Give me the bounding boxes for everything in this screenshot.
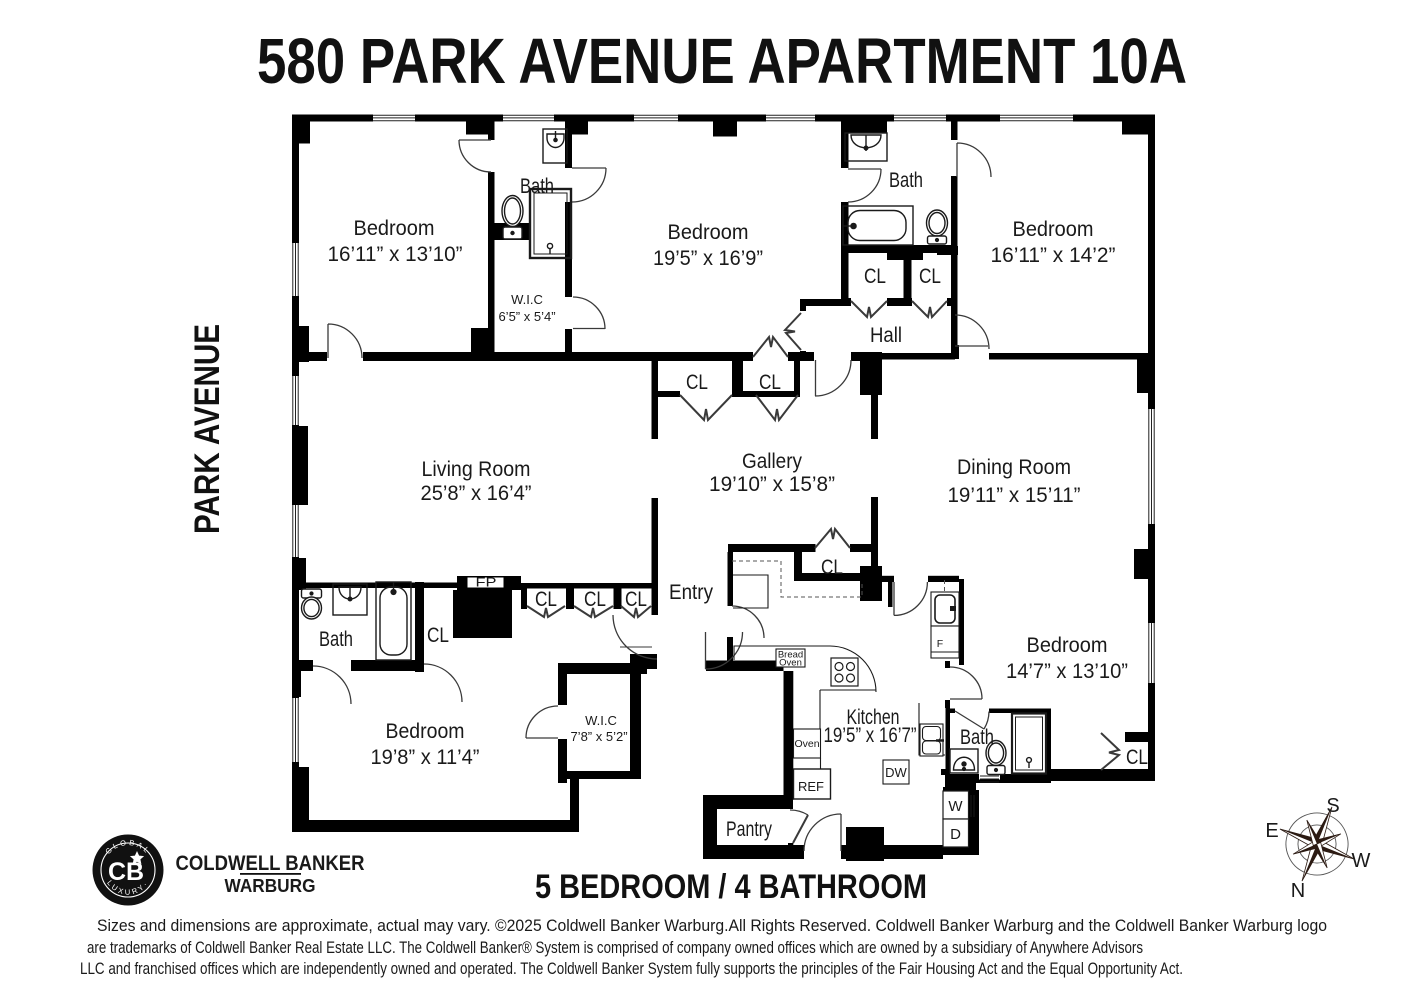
svg-text:N: N (1291, 880, 1305, 902)
svg-text:Living Room: Living Room (422, 458, 531, 481)
svg-text:FP: FP (476, 575, 497, 590)
svg-text:CL: CL (686, 371, 708, 394)
svg-text:DW: DW (885, 765, 907, 780)
svg-text:19’8” x 11’4”: 19’8” x 11’4” (371, 746, 480, 769)
svg-text:Oven: Oven (794, 738, 819, 750)
svg-text:Bath: Bath (889, 169, 923, 192)
svg-text:LLC and franchised offices whi: LLC and franchised offices which are ind… (80, 960, 1183, 978)
svg-text:16’11” x 14’2”: 16’11” x 14’2” (991, 244, 1116, 267)
svg-text:25’8” x 16’4”: 25’8” x 16’4” (421, 482, 532, 505)
svg-text:F: F (937, 638, 943, 650)
svg-text:S: S (1326, 795, 1339, 817)
svg-text:PARK AVENUE: PARK AVENUE (188, 324, 227, 534)
svg-text:CL: CL (427, 624, 449, 647)
svg-text:Bath: Bath (520, 175, 554, 198)
svg-text:WARBURG: WARBURG (225, 876, 316, 896)
svg-text:580 PARK AVENUE APARTMENT 10A: 580 PARK AVENUE APARTMENT 10A (257, 25, 1187, 97)
svg-text:Bath: Bath (319, 628, 353, 651)
svg-text:Bedroom: Bedroom (668, 221, 749, 244)
svg-text:CL: CL (821, 556, 843, 579)
svg-text:14’7” x 13’10”: 14’7” x 13’10” (1006, 660, 1128, 683)
svg-text:19’11” x 15’11”: 19’11” x 15’11” (948, 484, 1081, 507)
svg-text:16’11” x 13’10”: 16’11” x 13’10” (328, 243, 463, 266)
svg-text:CL: CL (1126, 746, 1148, 769)
svg-text:W: W (1352, 850, 1371, 872)
svg-text:Bedroom: Bedroom (1027, 634, 1108, 657)
svg-text:CL: CL (864, 265, 886, 288)
svg-text:CL: CL (535, 588, 557, 611)
svg-text:Pantry: Pantry (726, 818, 772, 841)
svg-text:5 BEDROOM / 4 BATHROOM: 5 BEDROOM / 4 BATHROOM (535, 868, 927, 906)
svg-text:Bath: Bath (960, 726, 994, 749)
svg-text:CL: CL (759, 371, 781, 394)
svg-text:19’5” x 16’9”: 19’5” x 16’9” (653, 247, 763, 270)
svg-text:7’8” x 5’2”: 7’8” x 5’2” (570, 729, 627, 744)
svg-text:W: W (948, 798, 963, 815)
svg-text:Gallery: Gallery (742, 450, 802, 473)
svg-text:Entry: Entry (669, 581, 713, 604)
svg-text:19’10” x 15’8”: 19’10” x 15’8” (709, 473, 835, 496)
svg-text:Oven: Oven (779, 658, 802, 669)
svg-text:CL: CL (919, 265, 941, 288)
svg-text:are trademarks of Coldwell Ban: are trademarks of Coldwell Banker Real E… (87, 939, 1143, 957)
svg-text:CL: CL (584, 588, 606, 611)
svg-text:W.I.C: W.I.C (585, 713, 617, 728)
svg-text:CL: CL (625, 588, 647, 611)
svg-text:Bedroom: Bedroom (1013, 218, 1094, 241)
svg-text:REF: REF (798, 779, 824, 794)
svg-text:Hall: Hall (870, 324, 902, 347)
svg-text:W.I.C: W.I.C (511, 292, 543, 307)
svg-text:E: E (1265, 820, 1278, 842)
svg-text:Sizes and dimensions are appro: Sizes and dimensions are approximate, ac… (97, 917, 1327, 935)
svg-text:Dining Room: Dining Room (957, 456, 1071, 479)
svg-text:Bedroom: Bedroom (386, 720, 465, 743)
svg-text:D: D (950, 826, 961, 843)
svg-text:19’5” x 16’7”: 19’5” x 16’7” (824, 724, 917, 747)
svg-text:COLDWELL BANKER: COLDWELL BANKER (176, 852, 365, 875)
svg-text:Bedroom: Bedroom (354, 217, 435, 240)
svg-text:6’5” x 5’4”: 6’5” x 5’4” (498, 309, 555, 324)
